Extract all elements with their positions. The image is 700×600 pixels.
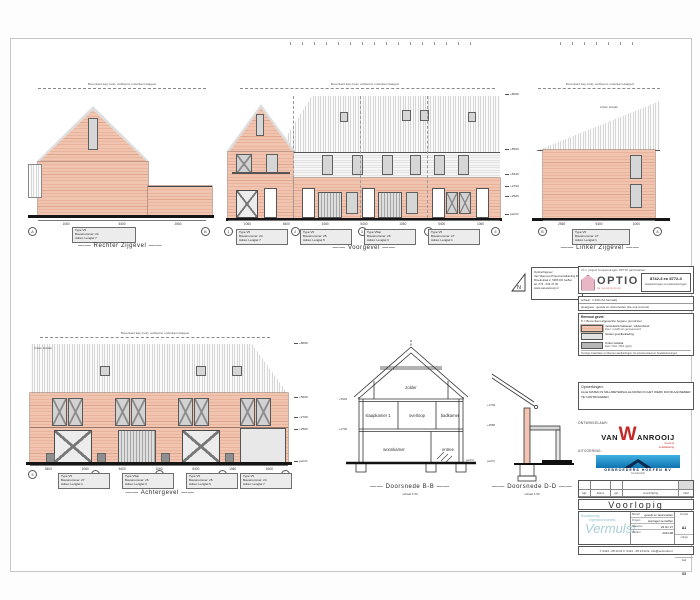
title-block-side: formaatA1 schaal1:100 blad03 [674, 512, 693, 544]
list-item: 1060 [399, 222, 406, 226]
front-slatted-door-2 [378, 192, 402, 218]
scale-info-block: schaal : 1:100 (A1 formaat) weergave : g… [578, 296, 694, 311]
gebroeders-roof-icon [624, 459, 652, 468]
rear-shutter-window-2 [68, 398, 83, 426]
list-item: Adres: Lengtel 7 [75, 237, 133, 241]
ridge-note-left: Bovenkant kap (nok), wolfseind, onderkan… [540, 82, 660, 86]
front-window-5 [434, 155, 445, 175]
list-item: 2560 [174, 222, 181, 226]
level-peil0: peil=0 [466, 458, 474, 462]
front-lower-window-3 [446, 192, 458, 214]
caption-rechter-zijgevel: Rechter Zijgevel [60, 243, 180, 249]
front-entry-door-1 [302, 188, 315, 218]
level-2700: +2700 [339, 427, 348, 431]
roof-window-1 [340, 112, 348, 122]
ground-line-right [28, 215, 214, 218]
list-item: Adres: Lengtel 7 [243, 483, 289, 487]
ridge-dash-line-left [538, 88, 660, 89]
list-item: 5400 [118, 222, 125, 226]
tb-label-project: Project [632, 519, 640, 523]
title-block-fields: Betreftgevels en doorsneden Projectwonin… [631, 512, 693, 544]
unit-tag-front-3: Type V5spBouwnummer: 26Adres: Lengtel 3 [364, 229, 416, 245]
front-window-6 [458, 155, 469, 175]
list-item: peil=0 [505, 212, 518, 216]
list-item: Adres: Lengtel 1 [61, 483, 107, 487]
wanrooij-w: W [619, 427, 637, 442]
optio-house-icon [581, 275, 595, 291]
section-dd-level-labels: +2700 +2580 peil=0 [487, 403, 496, 463]
balcony-rail [232, 172, 290, 174]
right-elevation-wall [38, 162, 148, 215]
title-block: Bouwkundig Ingenieursbureau Vermulst Bet… [578, 511, 694, 545]
revision-cell [623, 481, 679, 490]
grid-line-4 [427, 96, 428, 218]
unit-tag-front-4: Type V5Bouwnummer: 27Adres: Lengtel 1 [428, 229, 480, 245]
project-number-box: 8742-3 en 8772-3 Hoekwoningen en tussenw… [641, 273, 691, 292]
contact-text: T. 0413 - 28 13 01 F. 0413 - 28 13 02 E.… [599, 549, 672, 553]
dimension-row-front: 1060540010605400106054001060 [228, 220, 500, 226]
rear-roof-note: zinken felsdak [34, 347, 74, 351]
legend-swatch-zinc [581, 342, 603, 349]
front-entry-door-2 [362, 188, 375, 218]
list-item: 5400 [595, 222, 602, 226]
level-marks-rear: +8090+5600+2700+2580peil=0 [292, 341, 316, 467]
fold-marks-ruler-2 [560, 42, 640, 45]
tb-value-bouwnrs: 24 t/m 27 [661, 525, 673, 529]
revision-cell [579, 481, 591, 490]
rear-shutter-window-6 [194, 398, 209, 426]
van-wanrooij-logo: VAN W ANROOIJ bouw & ontwikkeling [588, 427, 688, 449]
tb-side-value-blad: 03 [682, 572, 686, 576]
gable-window [88, 118, 98, 150]
front-window-1 [322, 155, 333, 175]
developer-label: ONTWIKKELAAR: [578, 421, 608, 425]
right-elevation-extension [148, 186, 212, 216]
list-item: 1 [224, 227, 233, 236]
list-item: +2700 [505, 184, 519, 188]
legend-cladding-name: houten gevelbekleding [605, 332, 634, 336]
caption-doorsnede-bb-scale: schaal 1:50 [350, 492, 470, 496]
list-item: 1060 [477, 222, 484, 226]
list-item: Adres: Lengtel 3 [125, 483, 171, 487]
tb-side-label-schaal: schaal [675, 536, 693, 539]
unit-tag-front-2: Type V5Bouwnummer: 25Adres: Lengtel 5 [300, 229, 352, 245]
room-badkamer: badkamer [441, 413, 460, 418]
list-item: 1060 [322, 222, 329, 226]
list-item: A [28, 227, 37, 236]
list-item: +5600 [294, 395, 308, 399]
rear-barn-door-1 [54, 430, 92, 463]
room-entree: entree [442, 447, 455, 452]
tb-label-bouwnrs: Bouwnrs. [632, 525, 643, 529]
rear-shutter-window-8 [256, 398, 271, 426]
tb-label-betreft: Betreft [632, 513, 640, 517]
rear-garage-door [240, 428, 286, 463]
status-banner: Voorlopig [578, 499, 694, 510]
remarks-lines: ALLE MATEN IN MILLIMETERSALLE MATEN IN H… [581, 390, 691, 400]
client-info-box: Opdrachtgever:Van Wanrooij Projectontwik… [531, 267, 583, 300]
north-arrow-icon: N [509, 270, 529, 296]
caption-linker-zijgevel: Linker Zijgevel [540, 245, 660, 251]
revision-header-wijz: wijz. [579, 490, 591, 497]
legend-swatch-brick [581, 325, 603, 332]
legend-zinc-sub: kleur: RAL 7016 (grijs) [605, 345, 632, 348]
gebroeders-sub: bouwbedrijf [596, 472, 680, 475]
right-elevation-neighbor-roof [28, 164, 42, 198]
front-lower-window-4 [459, 192, 471, 214]
caption-doorsnede-dd-scale: schaal 1:50 [472, 492, 592, 496]
fold-marks-ruler [290, 42, 480, 45]
legend-item-zinc: zinken felsdakkleur: RAL 7016 (grijs) [581, 342, 691, 349]
front-entry-door-4 [476, 188, 489, 218]
ridge-dash-line-rear [40, 337, 270, 338]
vermulst-logo: Bouwkundig Ingenieursbureau Vermulst [579, 512, 631, 544]
list-item: B [538, 227, 547, 236]
section-dd-terrace-slab [542, 460, 572, 463]
list-item: +5340 [505, 172, 519, 176]
view-row: weergave : gevels en doorsneden (zie ook… [579, 303, 693, 310]
contractor-label: UITVOERING: [578, 449, 602, 453]
rear-barn-door-2 [182, 430, 220, 463]
legend-brick-sub: kleur: rood/bruin genuanceerd [605, 328, 649, 331]
legend-swatch-cladding [581, 333, 603, 340]
ridge-note-front: Bovenkant kap (nok), wolfseind, onderkan… [250, 82, 480, 86]
ridge-dash-line-front [240, 88, 495, 89]
unit-tag-left: Type V5Bouwnummer: 27Adres: Lengtel 1 [572, 229, 630, 245]
unit-tag-right: Type V5Bouwnummer: 24Adres: Lengtel 7 [72, 227, 136, 243]
front-upper-window-b [266, 154, 278, 174]
list-item: Adres: Lengtel 1 [431, 239, 477, 243]
list-item: Adres: Lengtel 7 [239, 239, 285, 243]
tb-label-werknr: Werknr. [632, 531, 641, 535]
legend-zinc-name: zinken felsdak [605, 341, 623, 345]
revision-header-get: get. [611, 490, 623, 497]
tb-side-label-blad: blad [675, 559, 693, 562]
revision-header-omschrijving: omschrijving [623, 490, 679, 497]
front-window-4 [410, 155, 421, 175]
front-gable-window [256, 114, 264, 136]
section-bb-room-labels: zolder slaapkamer 1 overloop badkamer wo… [365, 385, 459, 452]
wanrooij-van: VAN [601, 433, 618, 442]
front-slatted-door-1 [318, 192, 342, 218]
list-item: 5400 [360, 222, 367, 226]
list-item: 1060 [244, 222, 251, 226]
legend-block: Renvooi gevel: P = Bovenkant afgewerkte … [578, 313, 694, 356]
list-item: 2 [291, 227, 300, 236]
list-item: peil=0 [294, 459, 307, 463]
front-lower-window-1 [346, 192, 358, 214]
room-woonkamer: woonkamer [383, 447, 405, 452]
rear-roof-window-1 [100, 366, 110, 376]
vermulst-name: Vermulst [585, 522, 628, 535]
front-lower-window-2 [406, 192, 418, 214]
list-item: B [201, 227, 210, 236]
rear-roof-window-2 [196, 366, 206, 376]
list-item: +2580 [294, 427, 308, 431]
caption-doorsnede-dd: Doorsnede D-D [472, 484, 592, 490]
front-barn-door [236, 190, 258, 218]
room-zolder: zolder [405, 385, 417, 390]
caption-voorgevel: Voorgevel [304, 245, 424, 251]
project-brand-row: OPTIO de woonformule 8742-3 en 8772-3 Ho… [581, 273, 691, 292]
front-window-2 [352, 155, 363, 175]
rear-shutter-window-1 [52, 398, 67, 426]
unit-tag-rear-2: Type V5spBouwnummer: 26Adres: Lengtel 3 [122, 473, 174, 489]
list-item: Adres: Lengtel 1 [575, 239, 627, 243]
rear-roof-window-3 [232, 366, 242, 376]
drawing-sheet: { "sheet": { "top_note": "Bovenkant kap … [0, 0, 700, 600]
list-item: 5 [491, 227, 500, 236]
tb-value-betreft: gevels en doorsneden [645, 513, 673, 517]
project-number-sub: Hoekwoningen en tussenwoningen [642, 283, 690, 286]
legend-brick-name: metselwerk baksteen, wildverband [605, 324, 649, 328]
list-item: 1060 [633, 222, 640, 226]
section-bb-drawing: zolder slaapkamer 1 overloop badkamer wo… [338, 337, 484, 489]
gebroeders-logo-bar [596, 455, 680, 468]
rear-roof [30, 344, 288, 394]
caption-doorsnede-bb: Doorsnede B-B [350, 484, 470, 490]
front-roof [276, 96, 500, 153]
left-window-upper [630, 155, 642, 179]
legend-note: Overige materialen en kleuren aanduiding… [581, 350, 691, 355]
list-item: 1060 [62, 222, 69, 226]
list-item: A [653, 227, 662, 236]
list-item: ALLE MATEN IN MILLIMETERS [581, 390, 624, 394]
optio-logo-subtext: de woonformule [597, 287, 639, 290]
revision-header-datum: datum [591, 490, 611, 497]
room-slaapkamer: slaapkamer 1 [365, 413, 391, 418]
rear-shutter-window-7 [240, 398, 255, 426]
list-item: +5600 [505, 147, 519, 151]
ridge-dash-line [38, 88, 206, 89]
dimension-row-left: 256054001060 [543, 220, 655, 226]
tb-side-label-formaat: formaat [675, 513, 693, 516]
list-item: 5 [28, 470, 37, 479]
front-window-3 [382, 155, 393, 175]
unit-tag-front-1: Type V5Bouwnummer: 24Adres: Lengtel 7 [236, 229, 288, 245]
project-header-block: t.b.v. project 'koopwoningen OPTIO parti… [578, 266, 694, 294]
list-item: +8090 [294, 341, 308, 345]
list-item: +2580 [505, 194, 519, 198]
front-entry-door-0 [264, 188, 277, 218]
list-item: +8090 [505, 92, 519, 96]
gebroeders-logo: GEBROEDERS HOEFEN BV bouwbedrijf [596, 455, 680, 475]
project-header-line: t.b.v. project 'koopwoningen OPTIO parti… [581, 268, 691, 272]
list-item: Adres: Lengtel 3 [367, 239, 413, 243]
front-entry-door-3 [432, 188, 445, 218]
tb-side-value-formaat: A1 [682, 526, 686, 530]
roof-window-4 [468, 112, 476, 122]
rear-shutter-window-3 [115, 398, 130, 426]
title-block-rows: Betreftgevels en doorsneden Projectwonin… [631, 512, 674, 544]
level-marks-front: +8090+5600+5340+2700+2580peil=0 [503, 92, 527, 222]
revision-header-blad: blad [679, 490, 693, 497]
optio-brand: OPTIO de woonformule [597, 276, 639, 290]
remarks-block: Opmerkingen: ALLE MATEN IN MILLIMETERSAL… [578, 382, 694, 410]
unit-tag-rear-1: Type V5Bouwnummer: 27Adres: Lengtel 1 [58, 473, 110, 489]
dd-level-peil0: peil=0 [487, 459, 495, 463]
roof-material-note: zinken felsdak [600, 106, 640, 110]
peil-row: P = Bovenkant afgewerkte begane grondvlo… [581, 319, 691, 323]
left-window-lower [630, 184, 642, 208]
list-item: 5400 [283, 222, 290, 226]
dd-level-2700: +2700 [487, 403, 496, 407]
ridge-note: Bovenkant kap (nok), wolfseind, onderkan… [38, 82, 206, 86]
revision-cell-shaded [679, 481, 693, 490]
remarks-title: Opmerkingen: [581, 385, 691, 389]
list-item: 5400 [438, 222, 445, 226]
optio-logo-text: OPTIO [597, 276, 639, 287]
grid-line-2 [293, 96, 294, 218]
revision-cell [611, 481, 623, 490]
dimension-row-right: 106054002560 [38, 220, 206, 226]
section-dd-drawing: +2700 +2580 peil=0 [486, 368, 578, 488]
legend-item-cladding: houten gevelbekleding [581, 333, 691, 340]
caption-achtergevel: Achtergevel [100, 490, 220, 496]
rear-slatted-door [118, 430, 156, 463]
unit-tag-rear-3: Type V5Bouwnummer: 25Adres: Lengtel 5 [186, 473, 238, 489]
contact-strip: T. 0413 - 28 13 01 F. 0413 - 28 13 02 E.… [578, 546, 694, 555]
list-item: Adres: Lengtel 5 [303, 239, 349, 243]
level-5340: +5340 [339, 397, 348, 401]
tb-value-werknr: 2013-08 [662, 531, 673, 535]
list-item: Adres: Lengtel 5 [189, 483, 235, 487]
rear-shutter-window-5 [178, 398, 193, 426]
room-overloop: overloop [409, 413, 426, 418]
roof-window-2 [402, 110, 411, 121]
front-upper-window-a [236, 154, 252, 174]
revision-cell [591, 481, 611, 490]
list-item: www.vanwanrooij.nl [534, 286, 580, 290]
dd-level-2580: +2580 [487, 423, 496, 427]
project-number: 8742-3 en 8772-3 [642, 276, 690, 281]
tb-value-project: woningen te Geffen [648, 519, 673, 523]
svg-text:N: N [517, 285, 521, 291]
revision-table: wijz. datum get. omschrijving blad [578, 480, 694, 498]
rear-shutter-window-4 [131, 398, 146, 426]
list-item: +2700 [294, 415, 308, 419]
section-bb-structure [354, 340, 468, 472]
unit-tag-rear-4: Type V5Bouwnummer: 24Adres: Lengtel 7 [240, 473, 292, 489]
list-item: 2560 [558, 222, 565, 226]
legend-item-brick: metselwerk baksteen, wildverbandkleur: r… [581, 325, 691, 332]
grid-line-3 [360, 96, 361, 218]
ridge-note-rear: Bovenkant kap (nok), wolfseind, onderkan… [50, 331, 260, 335]
